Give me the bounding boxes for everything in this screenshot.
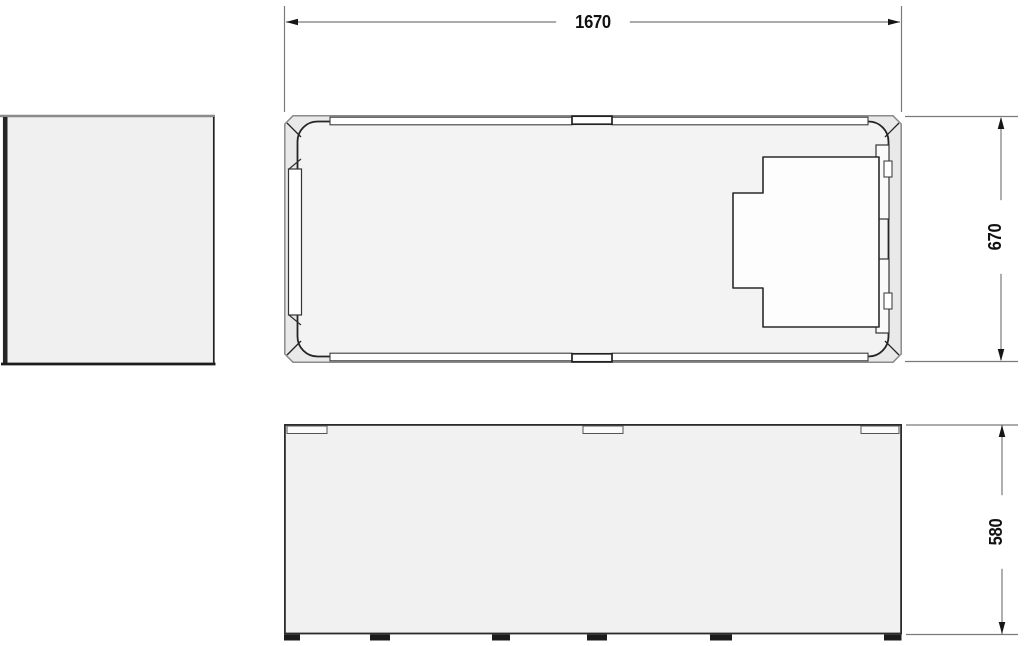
- drawing-linework: [0, 0, 1024, 646]
- rim-strips-top: [330, 116, 868, 125]
- dim-label-depth: 670: [985, 200, 1005, 274]
- dim-label-width: 1670: [556, 12, 630, 32]
- support-feet: [284, 635, 902, 641]
- side-view: [0, 116, 216, 364]
- front-panel: [285, 425, 901, 634]
- plan-view: [285, 116, 901, 362]
- dim-label-height: 580: [986, 495, 1006, 569]
- technical-drawing-canvas: 1670 670 580: [0, 0, 1024, 646]
- front-view: [284, 425, 902, 641]
- rim-strips-bottom: [330, 353, 868, 362]
- rim-strip-left: [289, 159, 302, 325]
